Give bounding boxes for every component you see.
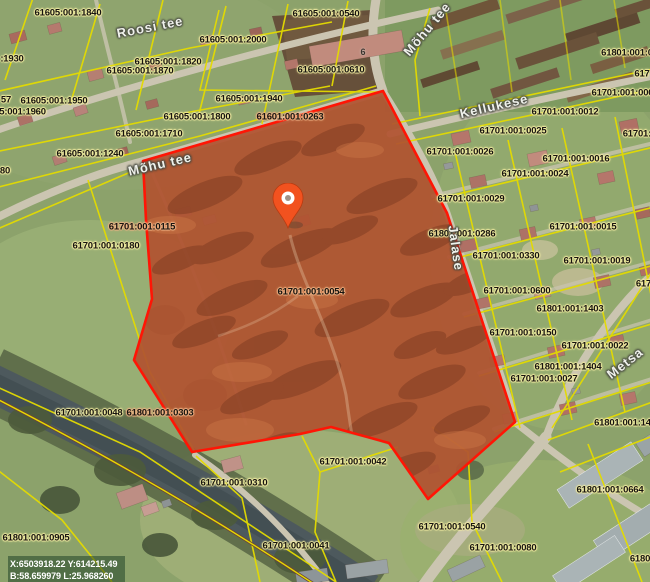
aerial-basemap [0,0,650,582]
allotment-gardens [385,0,650,112]
coordinate-readout: X:6503918.22 Y:614215.49 B:58.659979 L:2… [8,556,125,582]
map-viewport[interactable]: 61605:001:184061605:001:054061605:001:20… [0,0,650,582]
pin-icon [273,183,303,228]
location-pin[interactable] [271,183,305,229]
coords-bl: B:58.659979 L:25.968260 [10,571,117,582]
coords-xy: X:6503918.22 Y:614215.49 [10,559,117,571]
